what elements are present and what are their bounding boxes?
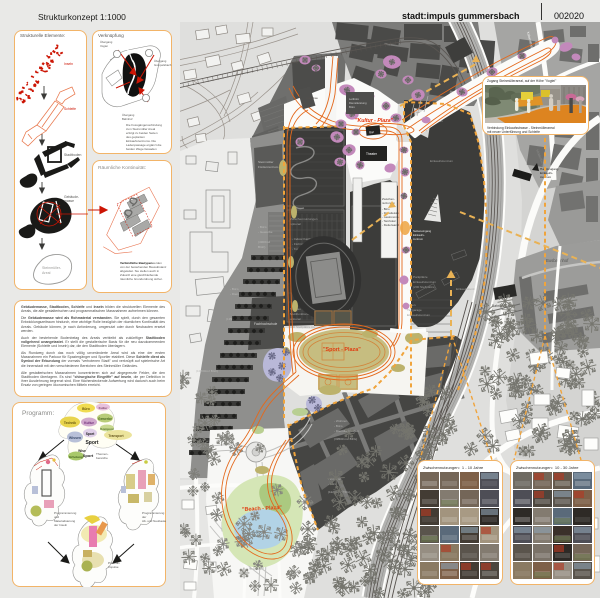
- svg-text:PremiumImpulse: PremiumImpulse: [108, 561, 121, 569]
- svg-text:- Wohnen: - Wohnen: [334, 419, 348, 423]
- svg-text:Förderzentrum: Förderzentrum: [258, 165, 279, 169]
- svg-text:Fachhochschule: Fachhochschule: [254, 322, 277, 326]
- svg-text:Kultur: Kultur: [84, 421, 94, 425]
- svg-text:Büro: Büro: [82, 407, 90, 411]
- svg-text:Steinmüller-: Steinmüller-: [42, 266, 62, 270]
- svg-text:Parkplätze: Parkplätze: [413, 275, 428, 279]
- svg-text:BGF): BGF): [258, 245, 265, 249]
- svg-text:ProgrammierungderAlt- und Neub: ProgrammierungderAlt- und Neubauten: [142, 511, 166, 523]
- svg-text:Einkaufszentrum: Einkaufszentrum: [430, 159, 453, 163]
- svg-text:(4900m2: (4900m2: [258, 240, 270, 244]
- svg-text:Sport: Sport: [86, 432, 96, 436]
- svg-text:Themen-bereiche: Themen-bereiche: [96, 452, 108, 460]
- svg-text:ProgrammierungundMaterialisier: ProgrammierungundMaterialisierungder Ins…: [54, 511, 77, 527]
- svg-text:Sport: Sport: [85, 440, 98, 446]
- svg-text:optional: optional: [290, 222, 301, 226]
- svg-text:Steinmüller: Steinmüller: [258, 160, 273, 164]
- svg-text:Technik: Technik: [64, 421, 76, 425]
- svg-text:Kompost: Kompost: [100, 427, 113, 431]
- svg-text:Einkaufszentrum: Einkaufszentrum: [413, 280, 436, 284]
- svg-text:"Sport - Plaza": "Sport - Plaza": [323, 347, 361, 353]
- svg-text:(10800m2 BGF): (10800m2 BGF): [196, 369, 218, 373]
- svg-text:- Kletterwand: - Kletterwand: [382, 223, 399, 227]
- svg-text:Kultur: Kultur: [99, 406, 109, 410]
- svg-text:Tiefgarage: Tiefgarage: [407, 308, 422, 312]
- svg-text:beiden Wege fassaden: beiden Wege fassaden: [126, 147, 157, 151]
- svg-text:Schleife: Schleife: [64, 107, 76, 111]
- svg-text:"Kultur - Plaza": "Kultur - Plaza": [355, 118, 394, 124]
- svg-text:Bar: Bar: [369, 130, 374, 134]
- svg-text:- Büro: - Büro: [230, 287, 239, 291]
- svg-text:Wissen: Wissen: [69, 436, 81, 440]
- svg-text:zentrum: zentrum: [413, 237, 424, 241]
- svg-text:Inseln: Inseln: [64, 62, 73, 66]
- svg-text:Bahnhof: Bahnhof: [122, 117, 133, 121]
- svg-text:Büro: Büro: [349, 105, 355, 109]
- svg-text:Vogtei: Vogtei: [100, 44, 108, 48]
- svg-text:Gewerbe: Gewerbe: [98, 417, 112, 421]
- svg-text:- Büro: - Büro: [258, 225, 267, 229]
- svg-text:masse: masse: [64, 199, 74, 203]
- svg-text:- Gewerbe: - Gewerbe: [258, 230, 273, 234]
- svg-text:Stadtboden: Stadtboden: [64, 153, 81, 157]
- svg-text:Theater: Theater: [366, 152, 378, 156]
- svg-text:- Büro: - Büro: [334, 424, 343, 428]
- svg-text:Antenbau: Antenbau: [306, 96, 318, 100]
- svg-text:Sport: Sport: [83, 453, 94, 458]
- svg-text:Gumpelsbach: Gumpelsbach: [154, 63, 172, 67]
- svg-text:Erholung: Erholung: [69, 455, 83, 459]
- svg-text:Transport: Transport: [108, 434, 124, 438]
- svg-text:Areal: Areal: [42, 271, 51, 275]
- svg-text:(39500 m2 BFG): (39500 m2 BFG): [334, 437, 357, 441]
- svg-text:räumliche Grundordnung sicher.: räumliche Grundordnung sicher.: [120, 277, 163, 281]
